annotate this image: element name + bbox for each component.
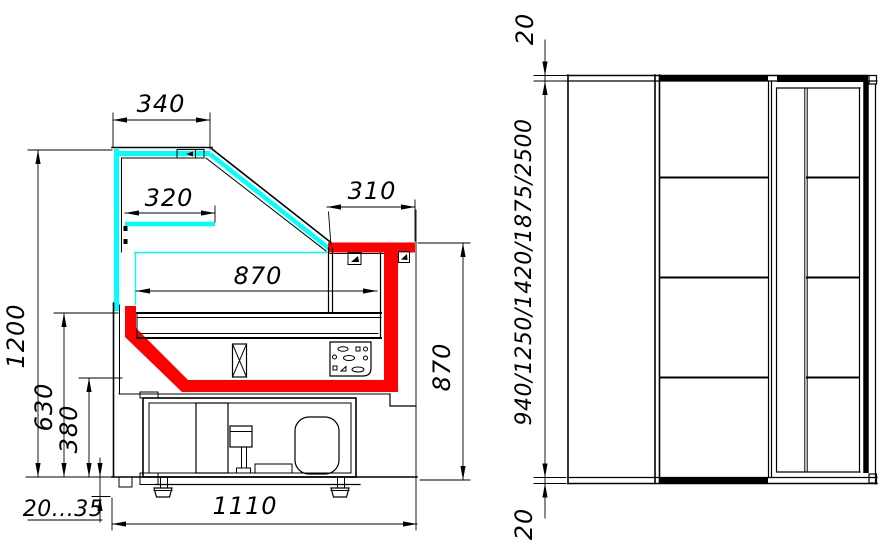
lower-bumper-red — [125, 306, 398, 392]
display-deck — [137, 313, 381, 338]
dim-label-870-width: 870 — [234, 262, 283, 290]
control-panel — [330, 342, 371, 376]
dim-label-870-height: 870 — [428, 343, 456, 392]
dimension-20-bottom: 20 — [510, 508, 538, 541]
dim-label-320: 320 — [145, 184, 194, 212]
front-slope-glass — [210, 154, 331, 250]
front-step — [390, 394, 416, 406]
dim-label-340: 340 — [137, 90, 186, 118]
corner-block-top — [869, 76, 877, 85]
dimension-20-top: 20 — [511, 13, 539, 46]
deck-support-section — [233, 344, 247, 377]
back-wall — [114, 303, 120, 477]
dimension-340: 340 — [113, 90, 210, 149]
dimension-310: 310 — [327, 177, 415, 246]
front-column-red — [384, 250, 398, 382]
divider-panel — [196, 403, 228, 473]
dimension-20-35: 20...35 — [23, 458, 110, 522]
dim-label-1200: 1200 — [2, 303, 30, 368]
section-view: 340 320 310 — [2, 90, 470, 530]
plan-view: 20 940/1250/1420/1875/2500 20 — [510, 13, 877, 541]
foot-front — [154, 477, 172, 497]
dim-label-20-top: 20 — [511, 13, 539, 46]
tray — [255, 464, 292, 473]
plan-body — [568, 75, 877, 484]
drawing-canvas: 340 320 310 — [0, 0, 894, 559]
machine-compartment — [140, 392, 356, 477]
dimension-380: 380 — [55, 378, 122, 477]
dimension-length-options: 940/1250/1420/1875/2500 — [512, 118, 537, 425]
dim-label-1110: 1110 — [212, 492, 277, 520]
dimension-320: 320 — [125, 184, 215, 222]
dim-label-20-35: 20...35 — [23, 497, 103, 522]
dimension-870-height: 870 — [418, 243, 470, 480]
dimension-870-width: 870 — [136, 262, 377, 294]
dim-label-length-options: 940/1250/1420/1875/2500 — [512, 118, 537, 425]
technical-drawing: 340 320 310 — [0, 0, 894, 559]
section-dimensions: 340 320 310 — [2, 90, 470, 530]
compressor — [295, 417, 339, 474]
dim-label-20-bottom: 20 — [510, 508, 538, 541]
dim-label-310: 310 — [348, 177, 397, 205]
dim-label-380: 380 — [55, 405, 83, 454]
foot-rear — [331, 477, 349, 497]
dim-label-630: 630 — [30, 383, 58, 432]
fastener-box-a — [348, 253, 361, 265]
plan-dimensions: 20 940/1250/1420/1875/2500 20 — [510, 13, 575, 541]
relay-box — [230, 426, 252, 473]
